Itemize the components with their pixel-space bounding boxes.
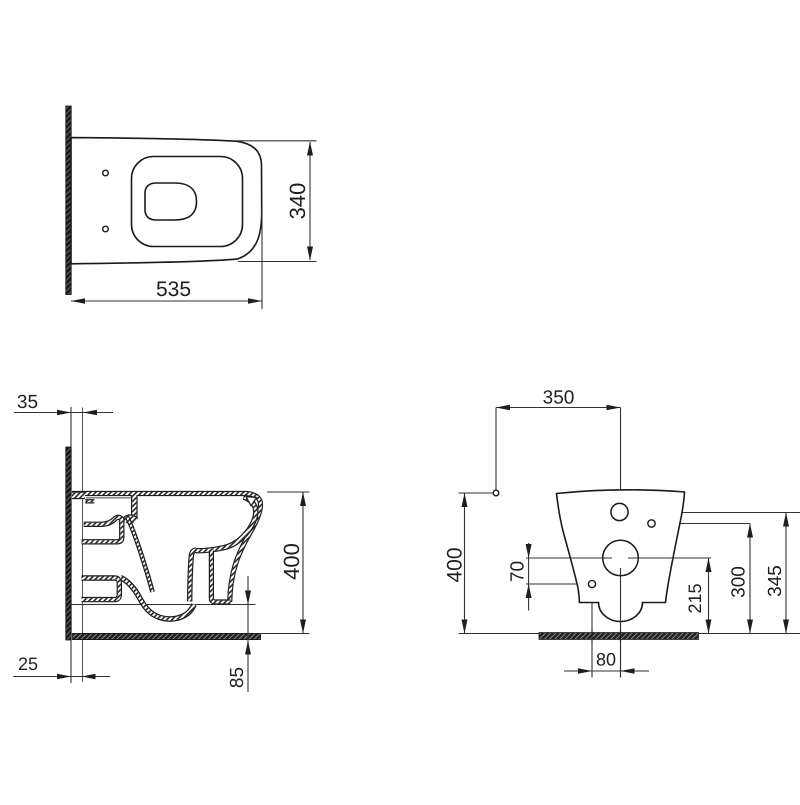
svg-text:300: 300 [729, 566, 750, 598]
svg-text:215: 215 [685, 583, 705, 613]
svg-text:350: 350 [543, 388, 575, 409]
svg-text:70: 70 [508, 561, 529, 582]
svg-text:25: 25 [18, 654, 38, 674]
svg-text:535: 535 [156, 278, 191, 301]
svg-text:35: 35 [17, 392, 38, 413]
svg-text:400: 400 [444, 547, 467, 582]
svg-text:345: 345 [765, 565, 786, 597]
svg-text:340: 340 [285, 183, 310, 220]
svg-text:85: 85 [227, 667, 248, 688]
svg-text:80: 80 [596, 650, 616, 670]
svg-text:400: 400 [279, 543, 304, 580]
